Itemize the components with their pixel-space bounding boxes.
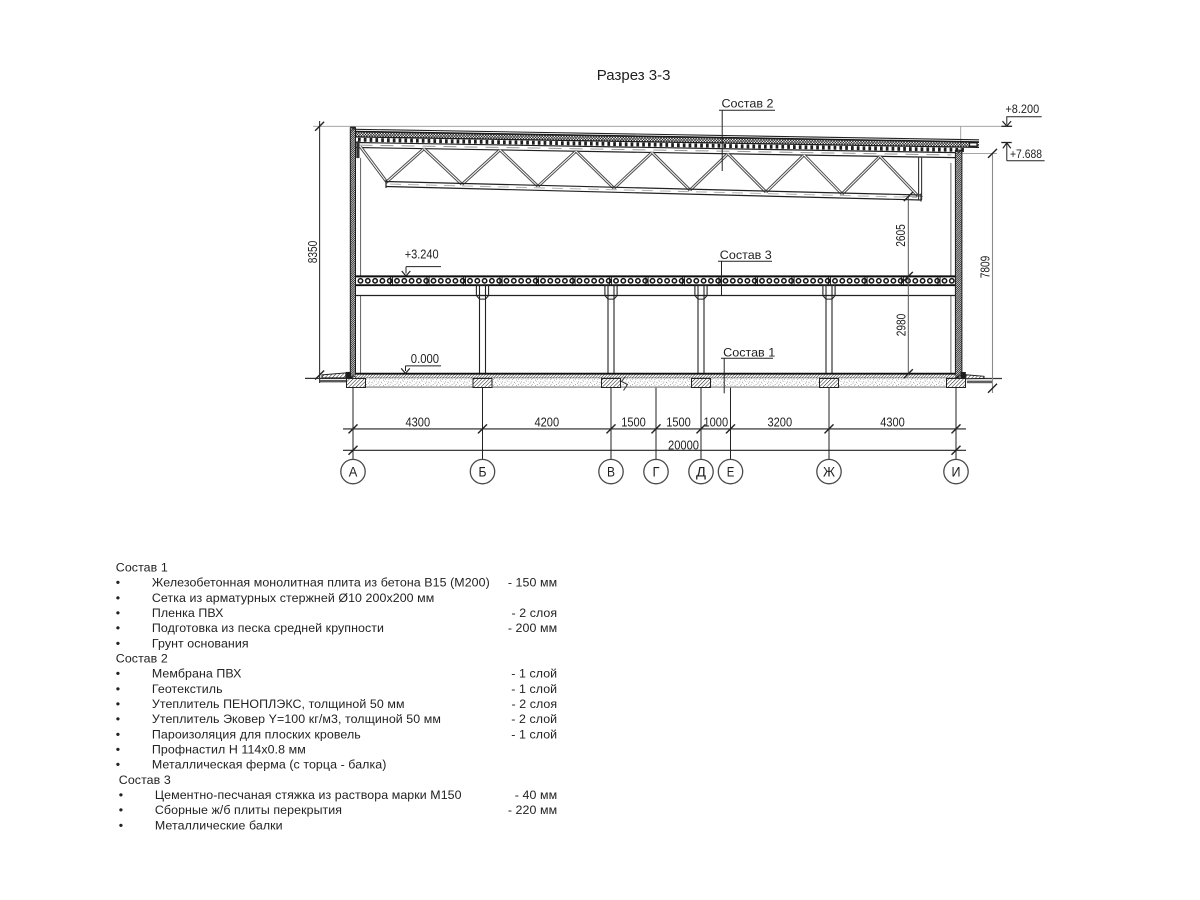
svg-text:8350: 8350 xyxy=(305,241,320,264)
svg-text:Е: Е xyxy=(727,464,735,479)
svg-text:1000: 1000 xyxy=(704,416,729,430)
svg-text:Пленка ПВХ: Пленка ПВХ xyxy=(152,606,224,620)
svg-text:- 150 мм: - 150 мм xyxy=(508,576,557,590)
svg-text:•: • xyxy=(116,682,120,696)
svg-text:•: • xyxy=(116,727,120,741)
svg-text:- 2 слоя: - 2 слоя xyxy=(511,697,557,711)
svg-text:Состав 3: Состав 3 xyxy=(720,248,772,262)
svg-text:•: • xyxy=(116,712,120,726)
svg-text:•: • xyxy=(116,576,120,590)
svg-text:•: • xyxy=(116,621,120,635)
svg-text:•: • xyxy=(116,667,120,681)
svg-text:Металлическая ферма (с торца -: Металлическая ферма (с торца - балка) xyxy=(152,758,387,772)
svg-text:Железобетонная монолитная плит: Железобетонная монолитная плита из бетон… xyxy=(152,576,490,590)
svg-text:•: • xyxy=(116,591,120,605)
svg-text:Грунт основания: Грунт основания xyxy=(152,636,249,650)
svg-text:1500: 1500 xyxy=(666,416,691,430)
svg-text:- 40 мм: - 40 мм xyxy=(515,788,557,802)
svg-text:- 2 слой: - 2 слой xyxy=(511,712,557,726)
svg-text:Утеплитель Эковер Y=100 кг/м3,: Утеплитель Эковер Y=100 кг/м3, толщиной … xyxy=(152,712,441,726)
svg-text:4300: 4300 xyxy=(880,416,905,430)
svg-text:•: • xyxy=(116,758,120,772)
svg-text:Пароизоляция для плоских крове: Пароизоляция для плоских кровель xyxy=(152,727,361,741)
svg-text:И: И xyxy=(952,464,961,479)
svg-text:- 200 мм: - 200 мм xyxy=(508,621,557,635)
svg-text:2980: 2980 xyxy=(894,314,909,337)
svg-text:- 1 слой: - 1 слой xyxy=(511,667,557,681)
svg-text:+3.240: +3.240 xyxy=(405,247,439,261)
svg-text:Г: Г xyxy=(653,464,661,479)
svg-text:20000: 20000 xyxy=(668,438,699,452)
svg-text:- 2 слоя: - 2 слоя xyxy=(511,606,557,620)
svg-text:Подготовка из песка средней кр: Подготовка из песка средней крупности xyxy=(152,621,384,635)
svg-text:Состав 3: Состав 3 xyxy=(119,773,171,787)
svg-text:Профнастил Н 114х0.8 мм: Профнастил Н 114х0.8 мм xyxy=(152,743,306,757)
svg-text:Утеплитель ПЕНОПЛЭКС, толщиной: Утеплитель ПЕНОПЛЭКС, толщиной 50 мм xyxy=(152,697,405,711)
svg-text:- 1 слой: - 1 слой xyxy=(511,682,557,696)
svg-text:Ж: Ж xyxy=(823,464,836,479)
svg-text:- 220 мм: - 220 мм xyxy=(508,803,557,817)
svg-text:Состав 2: Состав 2 xyxy=(116,652,168,666)
svg-text:4200: 4200 xyxy=(535,416,560,430)
svg-text:Сборные ж/б плиты перекрытия: Сборные ж/б плиты перекрытия xyxy=(155,803,342,817)
svg-text:Сетка из арматурных стержней Ø: Сетка из арматурных стержней Ø10 200х200… xyxy=(152,591,434,605)
svg-text:•: • xyxy=(116,697,120,711)
svg-text:Состав 1: Состав 1 xyxy=(723,346,775,360)
svg-text:Цементно-песчаная стяжка из ра: Цементно-песчаная стяжка из раствора мар… xyxy=(155,788,462,802)
svg-text:•: • xyxy=(116,636,120,650)
svg-text:1500: 1500 xyxy=(621,416,646,430)
svg-text:Мембрана ПВХ: Мембрана ПВХ xyxy=(152,667,242,681)
svg-text:- 1 слой: - 1 слой xyxy=(511,727,557,741)
svg-text:Б: Б xyxy=(479,464,487,479)
svg-text:•: • xyxy=(119,788,123,802)
svg-text:•: • xyxy=(116,743,120,757)
svg-text:+8.200: +8.200 xyxy=(1005,103,1039,116)
svg-text:3200: 3200 xyxy=(768,416,793,430)
svg-text:•: • xyxy=(116,606,120,620)
svg-text:2605: 2605 xyxy=(893,224,908,247)
svg-text:•: • xyxy=(119,803,123,817)
svg-text:4300: 4300 xyxy=(406,416,431,430)
svg-text:А: А xyxy=(349,464,358,479)
svg-text:+7.688: +7.688 xyxy=(1010,148,1042,161)
svg-text:Состав 2: Состав 2 xyxy=(722,96,774,110)
svg-text:Геотекстиль: Геотекстиль xyxy=(152,682,223,696)
svg-text:В: В xyxy=(607,464,615,479)
svg-text:Металлические балки: Металлические балки xyxy=(155,818,283,832)
svg-text:Д: Д xyxy=(696,464,706,479)
svg-text:Состав 1: Состав 1 xyxy=(116,561,168,575)
svg-text:7809: 7809 xyxy=(977,256,992,279)
svg-text:Разрез 3-3: Разрез 3-3 xyxy=(597,68,671,84)
svg-text:•: • xyxy=(119,818,123,832)
svg-text:0.000: 0.000 xyxy=(411,352,439,366)
